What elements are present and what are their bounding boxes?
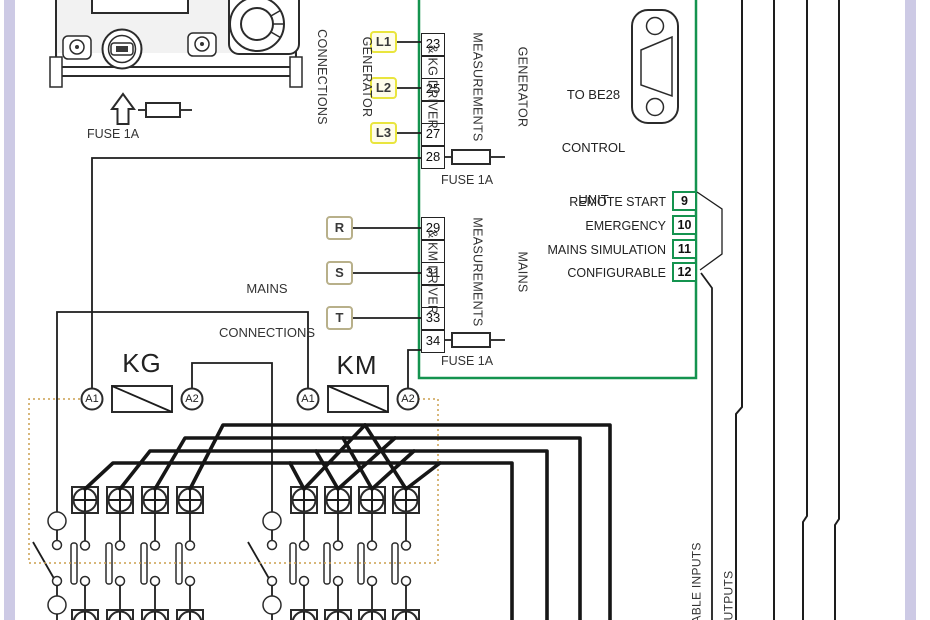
to-be28-control-unit-label: TO BE28 CONTROL UNIT — [545, 51, 642, 244]
generator-connections-label: GENERATOR CONNECTIONS — [284, 17, 404, 137]
kg-a2-label: A2 — [180, 393, 204, 405]
input-terminal-10: 10 — [672, 215, 697, 235]
inputs-bracket — [697, 192, 722, 270]
terminal-column — [324, 487, 351, 620]
device-display — [92, 0, 188, 13]
input-terminal-12: 12 — [672, 262, 697, 282]
kg-a1-label: A1 — [80, 393, 104, 405]
up-arrow-icon — [112, 94, 134, 124]
kg-contactor-label: KG — [112, 348, 172, 379]
be28-panel-device — [50, 0, 302, 124]
generator-measurements-label: GENERATOR MEASUREMENTS & KG DRIVER — [395, 8, 560, 166]
terminal-column — [358, 487, 385, 620]
terminal-column — [141, 487, 168, 620]
configurable-inputs-label: CONFIGURABLE INPUTS — [690, 554, 705, 620]
terminal-column — [176, 487, 203, 620]
mains-fuse-label: FUSE 1A — [427, 354, 507, 368]
device-fuse-icon — [146, 103, 180, 117]
generator-fuse-label: FUSE 1A — [427, 173, 507, 187]
generator-changeover-switch — [33, 512, 66, 620]
km-contactor-label: KM — [327, 350, 387, 381]
terminal-column — [71, 487, 98, 620]
mains-measurements-label: MAINS MEASUREMENTS & KM DRIVER — [395, 193, 560, 351]
terminal-column — [392, 487, 419, 620]
wiring-diagram-page: FUSE 1A FUSE 1A FUSE 1A 23 25 27 28 29 3… — [0, 0, 930, 620]
outputs-label: OUTPUTS — [722, 572, 737, 620]
phase-box-r: R — [326, 216, 353, 240]
power-bus-wiring — [85, 425, 610, 620]
input-terminal-9: 9 — [672, 191, 697, 211]
device-fuse-label: FUSE 1A — [73, 127, 153, 141]
output-wires — [736, 0, 839, 620]
terminal-column — [106, 487, 133, 620]
km-a2-label: A2 — [396, 393, 420, 405]
input-terminal-11: 11 — [672, 239, 697, 259]
km-a1-label: A1 — [296, 393, 320, 405]
mains-connections-label: MAINS CONNECTIONS — [197, 253, 337, 369]
terminal-column — [290, 487, 317, 620]
mains-changeover-switch — [248, 512, 281, 620]
